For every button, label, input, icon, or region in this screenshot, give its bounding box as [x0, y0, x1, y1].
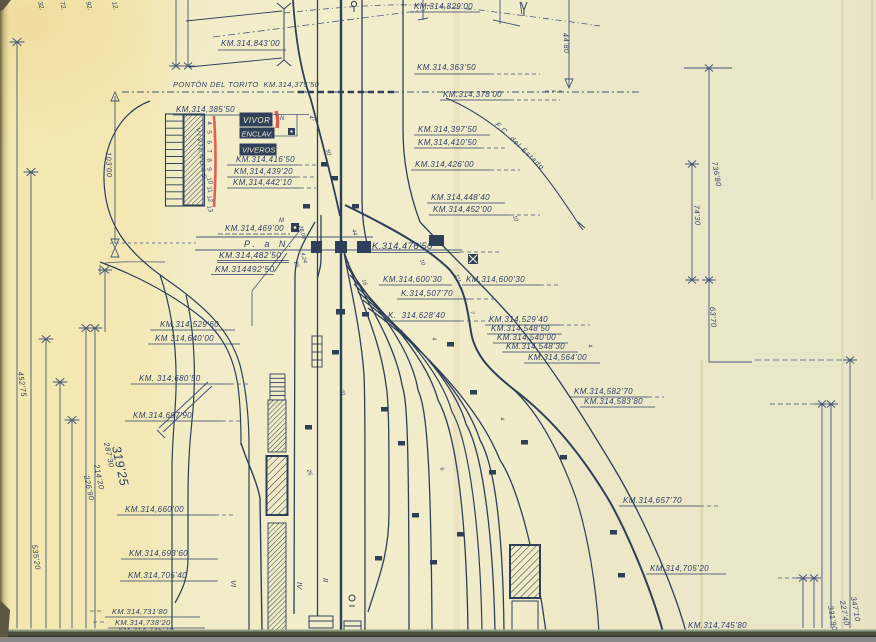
svg-text:KM.314,469’00: KM.314,469’00 [225, 224, 284, 233]
svg-text:KM.314,363’50: KM.314,363’50 [417, 63, 476, 72]
svg-text:VIVOR: VIVOR [243, 116, 270, 125]
svg-text:N: N [280, 116, 285, 122]
svg-text:KM,314,529’60: KM,314,529’60 [160, 320, 219, 329]
svg-text:KM.314,582’70: KM.314,582’70 [574, 387, 633, 396]
svg-text:KM.314,548’50: KM.314,548’50 [491, 324, 550, 333]
svg-text:PONTÓN DEL TORITO KM.314,375’: PONTÓN DEL TORITO KM.314,375’50 [173, 80, 320, 89]
svg-text:KM.314,705’40: KM.314,705’40 [128, 571, 187, 580]
svg-text:KM,314,442’10: KM,314,442’10 [233, 178, 292, 187]
svg-text:KM.314,482’50: KM.314,482’50 [219, 250, 281, 260]
svg-text:K.314,476’50: K.314,476’50 [372, 241, 433, 252]
svg-text:KM.314,548’30: KM.314,548’30 [506, 342, 565, 351]
svg-text:K.314,507’70: K.314,507’70 [401, 289, 453, 298]
svg-text:KM.314,583’80: KM.314,583’80 [584, 397, 643, 406]
svg-text:KM,314,385’50: KM,314,385’50 [176, 105, 235, 114]
svg-text:KM.314,397’50: KM.314,397’50 [418, 125, 477, 134]
svg-text:P. a N.: P. a N. [244, 239, 295, 249]
svg-text:KM.314,452’00: KM.314,452’00 [433, 205, 492, 214]
svg-text:KM.314492’50: KM.314492’50 [215, 264, 275, 274]
svg-text:KM. 314,680’50: KM. 314,680’50 [139, 374, 201, 383]
svg-text:KM.314,660’00: KM.314,660’00 [125, 505, 184, 514]
svg-text:II: II [321, 578, 330, 582]
svg-text:KM.314,745’80: KM.314,745’80 [688, 621, 747, 630]
svg-text:KM.314,600’30: KM.314,600’30 [466, 275, 525, 284]
svg-text:KM.314,529’40: KM.314,529’40 [489, 315, 548, 324]
svg-text:ENCLAV.: ENCLAV. [242, 130, 273, 139]
svg-text:KM.314,705’20: KM.314,705’20 [650, 564, 709, 573]
svg-text:KM.314,843’00: KM.314,843’00 [221, 39, 280, 48]
svg-text:44’80: 44’80 [561, 33, 571, 55]
svg-text:KM.314,564’00: KM.314,564’00 [528, 353, 587, 362]
svg-text:KM.314,378’00: KM.314,378’00 [443, 90, 502, 99]
svg-text:VI: VI [229, 580, 238, 587]
svg-text:103’00: 103’00 [104, 152, 114, 178]
svg-text:KM.314,448’40: KM.314,448’40 [431, 193, 490, 202]
svg-text:KM.314,697’90: KM.314,697’90 [133, 411, 192, 420]
svg-text:74’30: 74’30 [692, 205, 702, 227]
svg-text:KM,314,410’50: KM,314,410’50 [418, 138, 477, 147]
svg-text:K. 314,628’40: K. 314,628’40 [388, 311, 445, 320]
svg-text:KM.314,416’50: KM.314,416’50 [236, 155, 295, 164]
svg-text:63’70: 63’70 [708, 307, 718, 329]
svg-text:KM.314,540’00: KM.314,540’00 [497, 333, 556, 342]
svg-text:KM.314,600’30: KM.314,600’30 [383, 275, 442, 284]
svg-text:KM 314,640’00: KM 314,640’00 [155, 334, 214, 343]
svg-text:KM.314,693’60: KM.314,693’60 [129, 549, 188, 558]
svg-text:KM.314,426’00: KM.314,426’00 [415, 160, 474, 169]
svg-text:KM.314,657’70: KM.314,657’70 [623, 496, 682, 505]
svg-text:KM,314,439’20: KM,314,439’20 [234, 167, 293, 176]
svg-text:VIVEROS: VIVEROS [242, 146, 275, 155]
svg-text:IV: IV [295, 582, 304, 590]
svg-text:KM.314,731’80: KM.314,731’80 [112, 607, 168, 616]
